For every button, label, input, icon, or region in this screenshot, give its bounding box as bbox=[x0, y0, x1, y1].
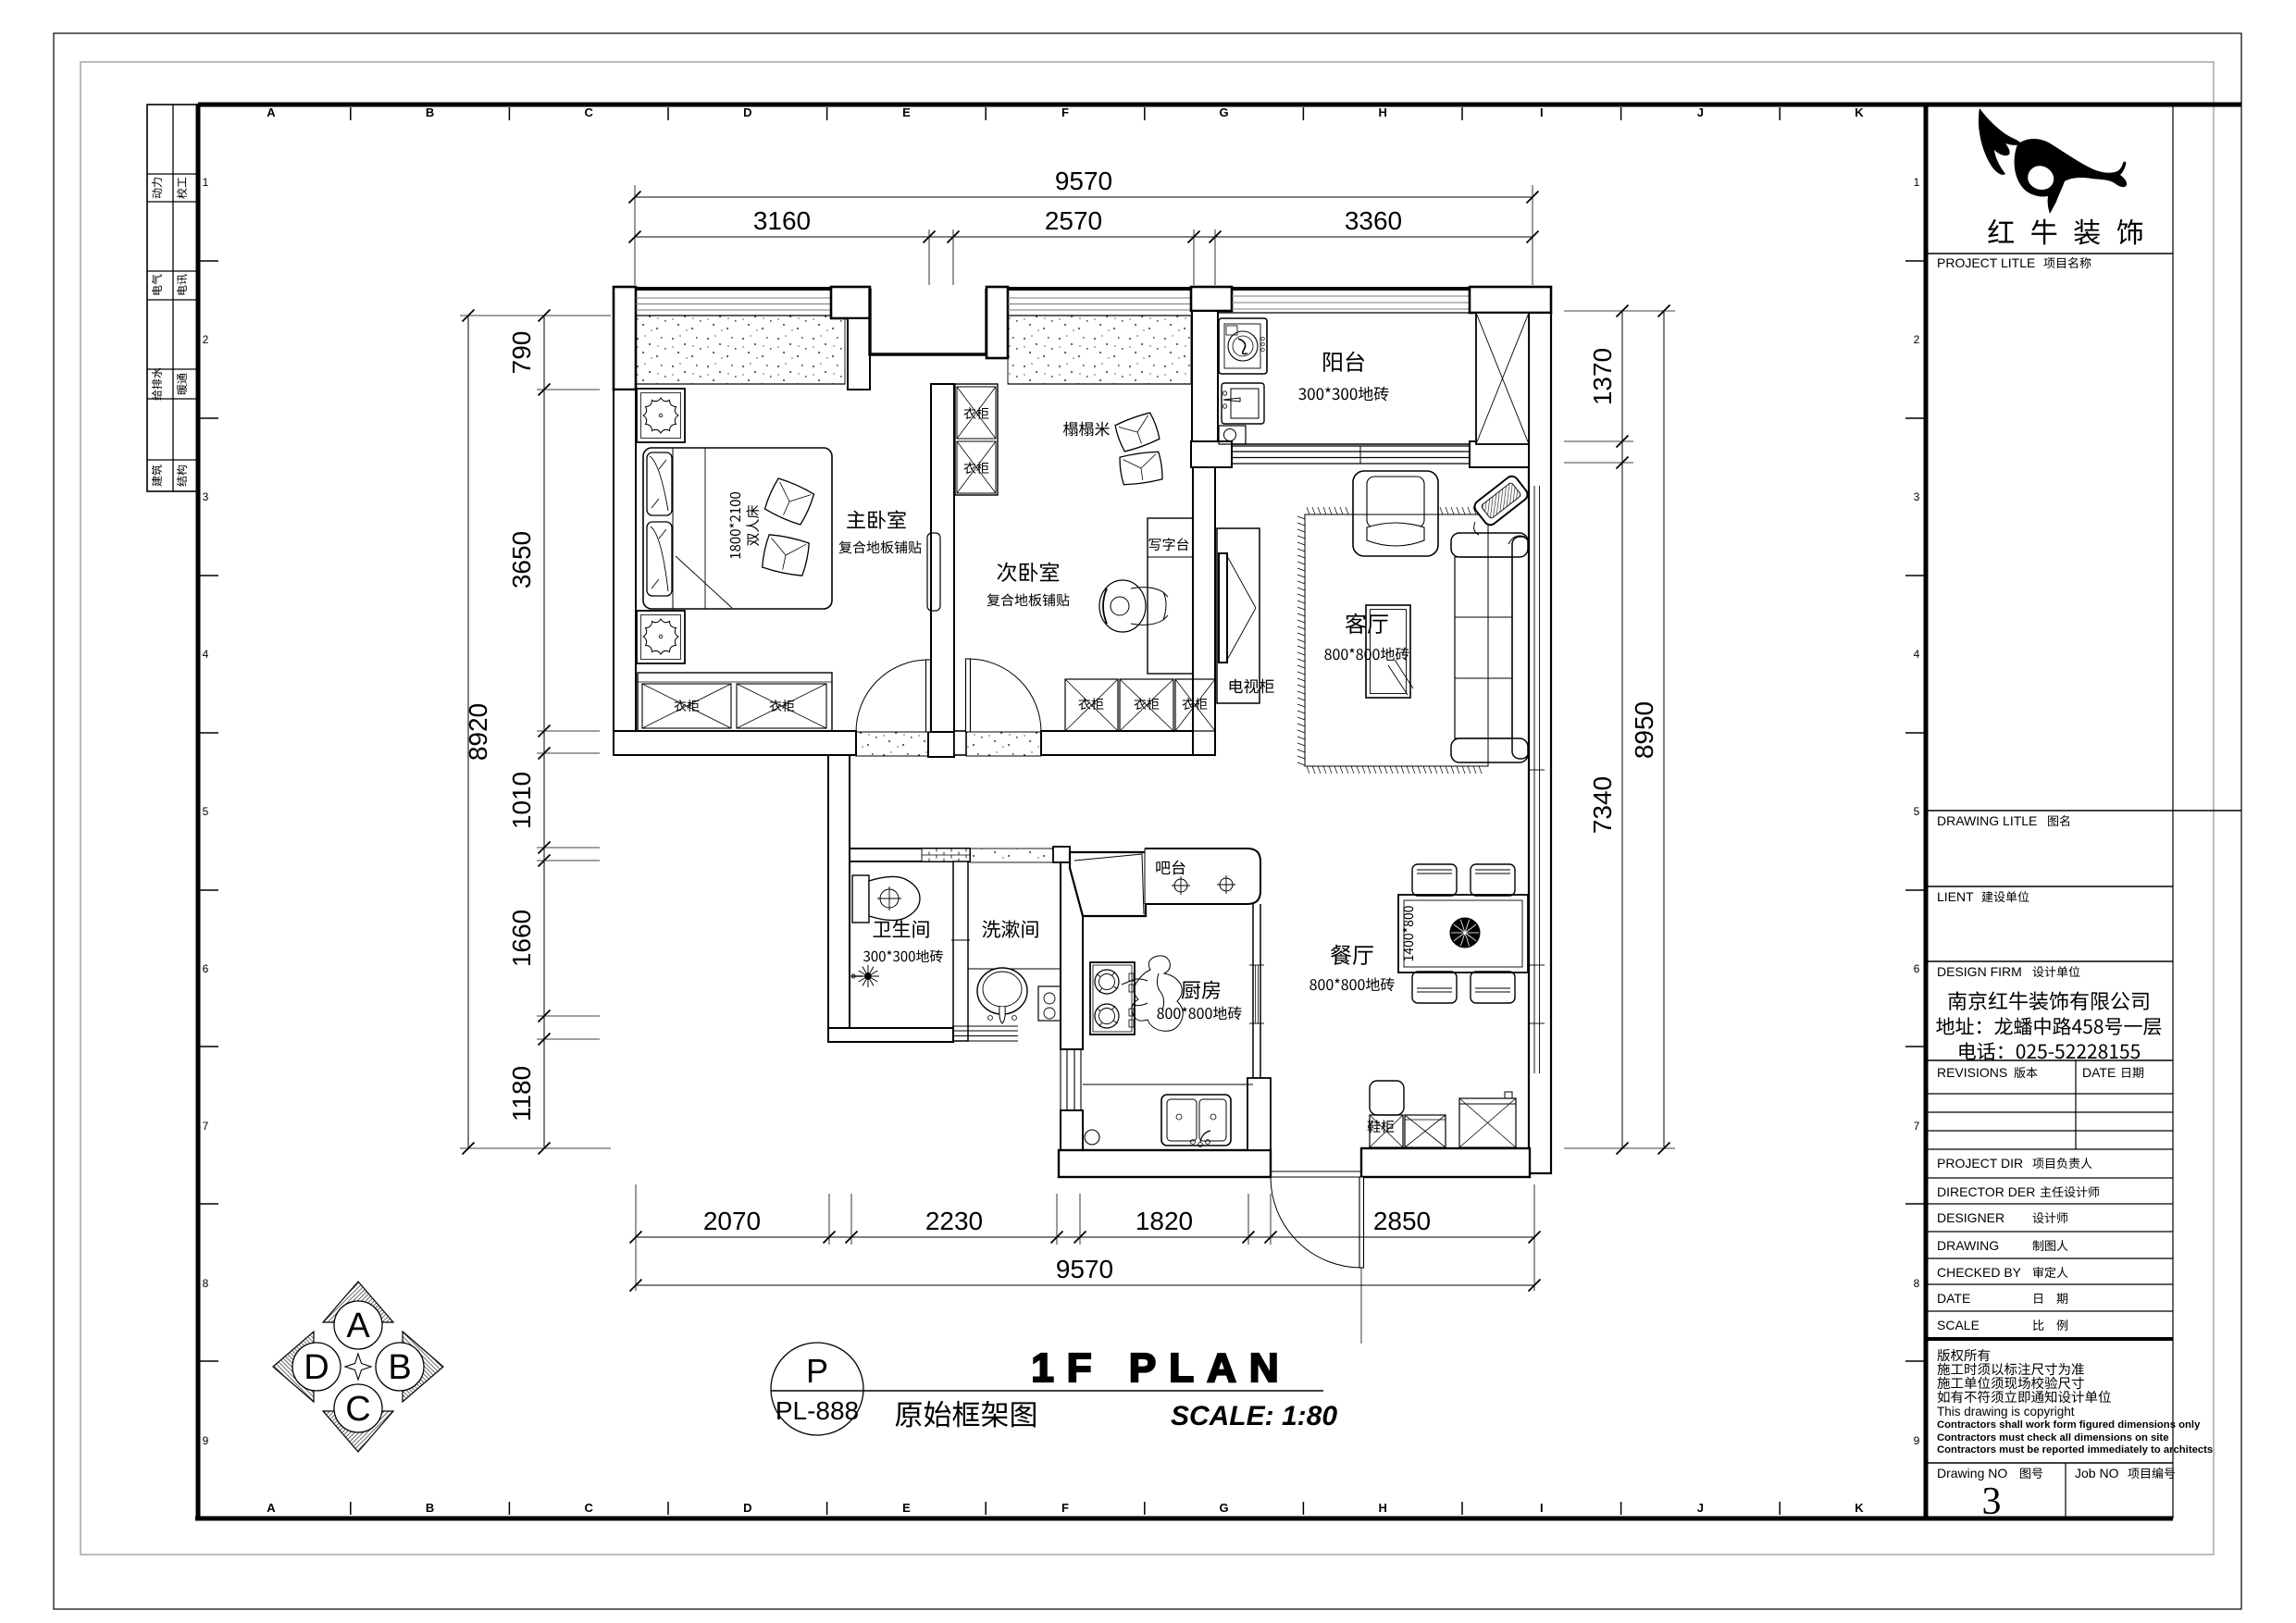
svg-text:1010: 1010 bbox=[507, 772, 536, 829]
svg-text:G: G bbox=[1220, 105, 1229, 119]
svg-text:9: 9 bbox=[1914, 1434, 1920, 1447]
svg-text:G: G bbox=[1220, 1501, 1229, 1515]
svg-text:5: 5 bbox=[203, 805, 209, 818]
svg-text:K: K bbox=[1855, 1501, 1864, 1515]
svg-text:J: J bbox=[1697, 1501, 1704, 1515]
svg-text:1820: 1820 bbox=[1136, 1207, 1193, 1235]
svg-text:6: 6 bbox=[1914, 962, 1920, 975]
svg-text:DRAWING: DRAWING bbox=[1937, 1238, 1999, 1253]
svg-text:8920: 8920 bbox=[464, 703, 492, 761]
svg-text:3650: 3650 bbox=[507, 531, 536, 588]
svg-text:D: D bbox=[304, 1348, 329, 1387]
svg-text:2850: 2850 bbox=[1373, 1207, 1431, 1235]
svg-text:DATE: DATE bbox=[2082, 1065, 2116, 1080]
svg-text:H: H bbox=[1379, 105, 1387, 119]
svg-text:Contractors shall work form fi: Contractors shall work form figured dime… bbox=[1937, 1419, 2201, 1431]
svg-text:C: C bbox=[585, 1501, 594, 1515]
svg-text:DESIGN FIRM: DESIGN FIRM bbox=[1937, 964, 2022, 979]
svg-text:9570: 9570 bbox=[1055, 167, 1112, 195]
svg-text:7: 7 bbox=[1914, 1120, 1920, 1133]
svg-text:6: 6 bbox=[203, 962, 209, 975]
svg-text:1370: 1370 bbox=[1588, 348, 1617, 405]
svg-text:SCALE: 1:80: SCALE: 1:80 bbox=[1171, 1401, 1337, 1431]
svg-text:B: B bbox=[426, 1501, 434, 1515]
svg-text:7: 7 bbox=[203, 1120, 209, 1133]
svg-text:1F PLAN: 1F PLAN bbox=[1031, 1345, 1291, 1391]
svg-text:REVISIONS: REVISIONS bbox=[1937, 1065, 2007, 1080]
svg-text:8: 8 bbox=[203, 1277, 209, 1290]
svg-text:2230: 2230 bbox=[925, 1207, 983, 1235]
svg-text:3: 3 bbox=[203, 490, 209, 503]
svg-text:DRAWING LITLE: DRAWING LITLE bbox=[1937, 813, 2037, 828]
svg-text:E: E bbox=[902, 1501, 911, 1515]
svg-text:Contractors must be reported i: Contractors must be reported immediately… bbox=[1937, 1444, 2213, 1456]
svg-text:Contractors must check all dim: Contractors must check all dimensions on… bbox=[1937, 1432, 2168, 1443]
svg-text:1180: 1180 bbox=[507, 1066, 536, 1121]
svg-text:3160: 3160 bbox=[753, 206, 811, 235]
svg-text:P: P bbox=[806, 1352, 828, 1390]
svg-text:B: B bbox=[426, 105, 434, 119]
svg-text:4: 4 bbox=[1914, 648, 1920, 661]
svg-text:A: A bbox=[267, 1501, 276, 1515]
svg-text:LIENT: LIENT bbox=[1937, 889, 1974, 904]
svg-text:2: 2 bbox=[1914, 333, 1920, 346]
svg-text:CHECKED BY: CHECKED BY bbox=[1937, 1265, 2022, 1280]
svg-text:Job NO: Job NO bbox=[2075, 1466, 2119, 1481]
svg-text:1660: 1660 bbox=[507, 910, 536, 967]
svg-text:8950: 8950 bbox=[1630, 701, 1658, 759]
svg-text:2070: 2070 bbox=[703, 1207, 761, 1235]
svg-text:790: 790 bbox=[507, 331, 536, 375]
svg-text:I: I bbox=[1540, 105, 1544, 119]
svg-text:2: 2 bbox=[203, 333, 209, 346]
svg-text:D: D bbox=[743, 105, 751, 119]
svg-text:7340: 7340 bbox=[1588, 776, 1617, 834]
svg-text:4: 4 bbox=[203, 648, 209, 661]
svg-text:F: F bbox=[1061, 1501, 1069, 1515]
svg-text:This drawing is copyright: This drawing is copyright bbox=[1937, 1405, 2075, 1419]
svg-text:PROJECT DIR: PROJECT DIR bbox=[1937, 1156, 2023, 1171]
svg-text:D: D bbox=[743, 1501, 751, 1515]
svg-text:3: 3 bbox=[1982, 1481, 2002, 1523]
svg-text:PL-888: PL-888 bbox=[776, 1396, 859, 1425]
svg-text:Drawing NO: Drawing NO bbox=[1937, 1466, 2007, 1481]
svg-text:2570: 2570 bbox=[1045, 206, 1102, 235]
svg-text:8: 8 bbox=[1914, 1277, 1920, 1290]
svg-text:F: F bbox=[1061, 105, 1069, 119]
svg-text:DESIGNER: DESIGNER bbox=[1937, 1210, 2004, 1225]
svg-text:3360: 3360 bbox=[1345, 206, 1402, 235]
svg-text:DATE: DATE bbox=[1937, 1291, 1970, 1306]
svg-text:B: B bbox=[388, 1348, 411, 1387]
svg-text:9: 9 bbox=[203, 1434, 209, 1447]
svg-text:3: 3 bbox=[1914, 490, 1920, 503]
svg-text:PROJECT LITLE: PROJECT LITLE bbox=[1937, 255, 2035, 270]
svg-text:I: I bbox=[1540, 1501, 1544, 1515]
svg-text:C: C bbox=[345, 1390, 370, 1429]
svg-text:1: 1 bbox=[1914, 176, 1920, 189]
svg-text:C: C bbox=[585, 105, 594, 119]
svg-text:H: H bbox=[1379, 1501, 1387, 1515]
svg-text:1: 1 bbox=[203, 176, 209, 189]
svg-text:J: J bbox=[1697, 105, 1704, 119]
svg-text:K: K bbox=[1855, 105, 1864, 119]
svg-text:5: 5 bbox=[1914, 805, 1920, 818]
svg-text:9570: 9570 bbox=[1056, 1255, 1113, 1283]
svg-text:SCALE: SCALE bbox=[1937, 1318, 1980, 1332]
svg-text:A: A bbox=[346, 1307, 370, 1345]
svg-text:E: E bbox=[902, 105, 911, 119]
svg-text:DIRECTOR DER: DIRECTOR DER bbox=[1937, 1184, 2035, 1199]
svg-text:A: A bbox=[267, 105, 276, 119]
